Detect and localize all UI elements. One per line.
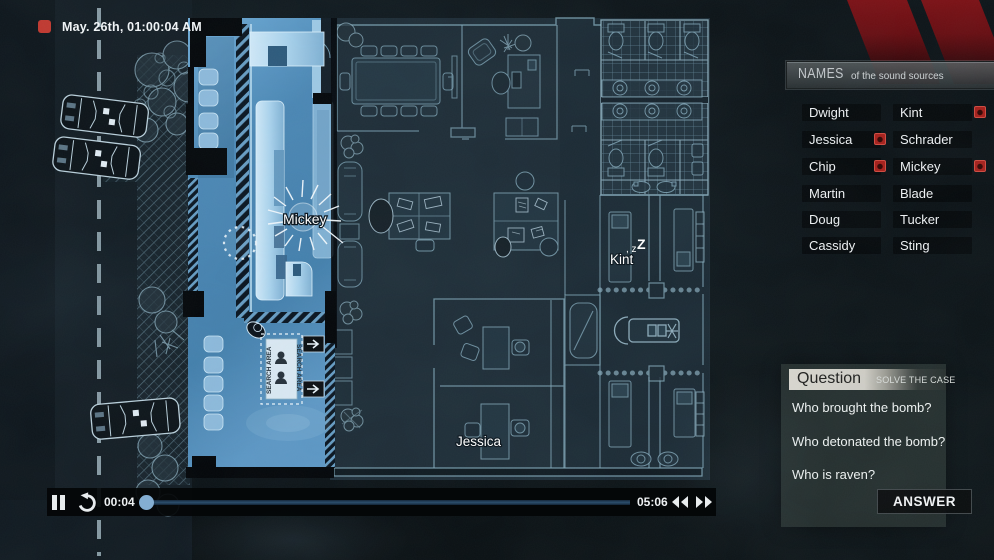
svg-text:Kint: Kint xyxy=(610,252,634,267)
svg-text:Mickey: Mickey xyxy=(283,211,327,227)
svg-text:Jessica: Jessica xyxy=(456,434,502,449)
svg-text:SEARCH AREA: SEARCH AREA xyxy=(295,344,302,392)
svg-text:SEARCH AREA: SEARCH AREA xyxy=(266,346,273,394)
svg-text:Z: Z xyxy=(637,236,646,252)
